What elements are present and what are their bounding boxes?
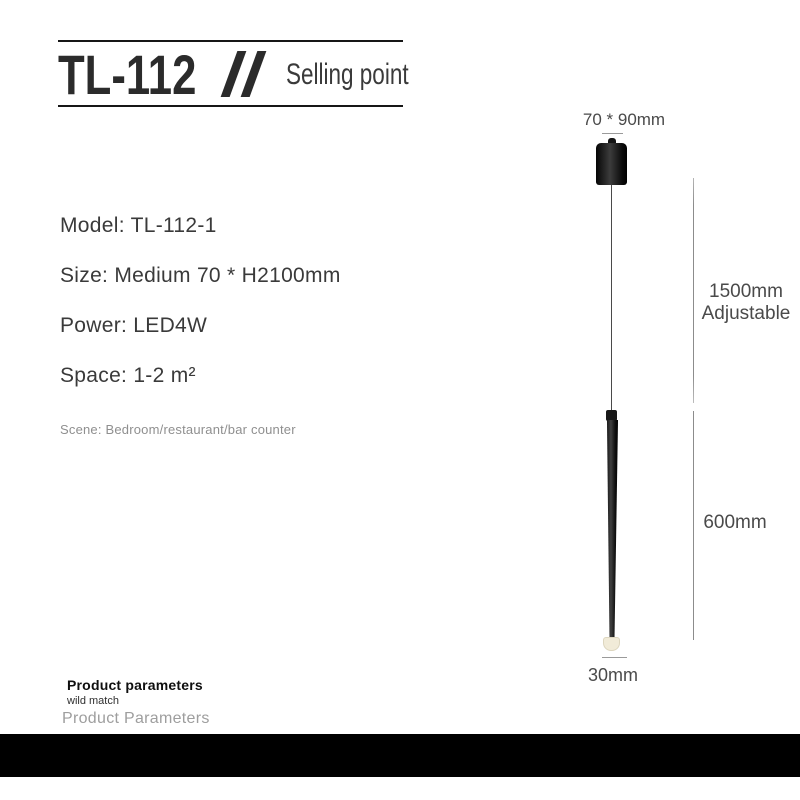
header-box: TL-112 Selling point xyxy=(58,40,403,107)
slash-bar xyxy=(241,51,267,97)
led-tip xyxy=(603,637,620,651)
lamp-tube xyxy=(605,420,619,637)
spec-list: Model: TL-112-1 Size: Medium 70 * H2100m… xyxy=(60,215,341,415)
bottom-bar xyxy=(0,734,800,777)
spec-model: Model: TL-112-1 xyxy=(60,215,341,236)
product-sheet: TL-112 Selling point Model: TL-112-1 Siz… xyxy=(0,0,800,800)
footer-caption: Product Parameters xyxy=(62,710,210,728)
spec-size: Size: Medium 70 * H2100mm xyxy=(60,265,341,286)
spec-power: Power: LED4W xyxy=(60,315,341,336)
ceiling-canopy xyxy=(596,143,627,185)
dimension-drop-value: 1500mm xyxy=(698,281,794,303)
suspension-wire xyxy=(611,185,612,411)
dimension-label-tip: 30mm xyxy=(573,665,653,686)
page-subtitle: Selling point xyxy=(286,60,409,90)
double-slash-icon xyxy=(229,51,269,97)
dimension-label-tube: 600mm xyxy=(695,512,775,534)
page-title-model: TL-112 xyxy=(58,47,196,103)
scene-note: Scene: Bedroom/restaurant/bar counter xyxy=(60,422,296,437)
dimension-label-canopy: 70 * 90mm xyxy=(568,110,680,130)
dimension-line-drop xyxy=(693,178,694,403)
tube-connector xyxy=(606,410,617,421)
footer-subtitle: wild match xyxy=(67,695,210,707)
footer-block: Product parameters wild match Product Pa… xyxy=(62,677,210,728)
footer-title: Product parameters xyxy=(67,677,210,693)
dimension-drop-note: Adjustable xyxy=(698,303,794,325)
dimension-tick-tip xyxy=(602,657,627,658)
dimension-line-tube xyxy=(693,411,694,640)
dimension-label-drop: 1500mm Adjustable xyxy=(698,281,794,325)
dimension-tick-canopy xyxy=(602,133,623,134)
spec-space: Space: 1-2 m² xyxy=(60,365,341,386)
